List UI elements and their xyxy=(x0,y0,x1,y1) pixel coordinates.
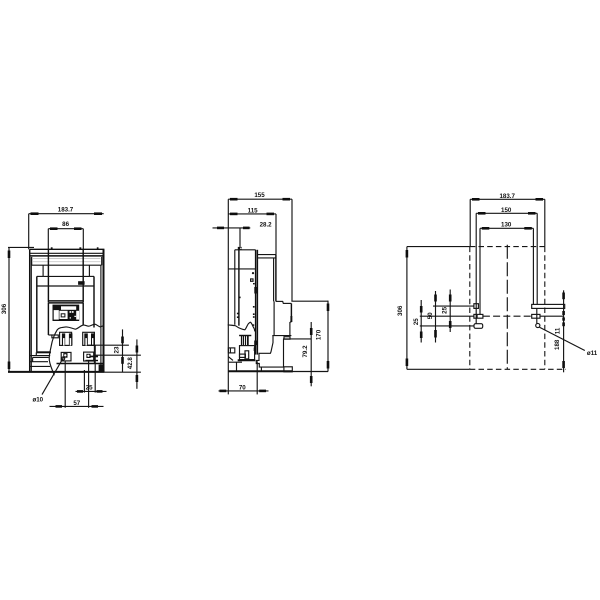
svg-text:28.2: 28.2 xyxy=(260,221,273,228)
svg-text:25: 25 xyxy=(86,385,93,392)
svg-text:70: 70 xyxy=(239,384,246,391)
svg-text:183.7: 183.7 xyxy=(58,207,74,214)
svg-text:170: 170 xyxy=(316,329,323,340)
svg-text:ø10: ø10 xyxy=(32,396,43,403)
svg-text:42.8: 42.8 xyxy=(127,357,134,370)
svg-text:11: 11 xyxy=(554,327,561,334)
svg-text:ø11: ø11 xyxy=(587,350,598,357)
svg-text:86: 86 xyxy=(62,221,69,228)
svg-text:130: 130 xyxy=(501,221,512,228)
svg-text:306: 306 xyxy=(1,303,8,314)
svg-text:50: 50 xyxy=(427,312,434,319)
svg-text:115: 115 xyxy=(248,207,259,214)
svg-text:25: 25 xyxy=(442,306,449,313)
svg-text:57: 57 xyxy=(73,400,80,407)
svg-text:79.2: 79.2 xyxy=(302,345,309,358)
svg-text:25: 25 xyxy=(413,318,420,325)
svg-text:183.7: 183.7 xyxy=(499,193,515,200)
svg-text:23: 23 xyxy=(114,346,121,353)
svg-text:306: 306 xyxy=(397,305,404,316)
svg-text:188: 188 xyxy=(554,339,561,350)
svg-text:150: 150 xyxy=(501,207,512,214)
svg-text:155: 155 xyxy=(254,192,265,199)
